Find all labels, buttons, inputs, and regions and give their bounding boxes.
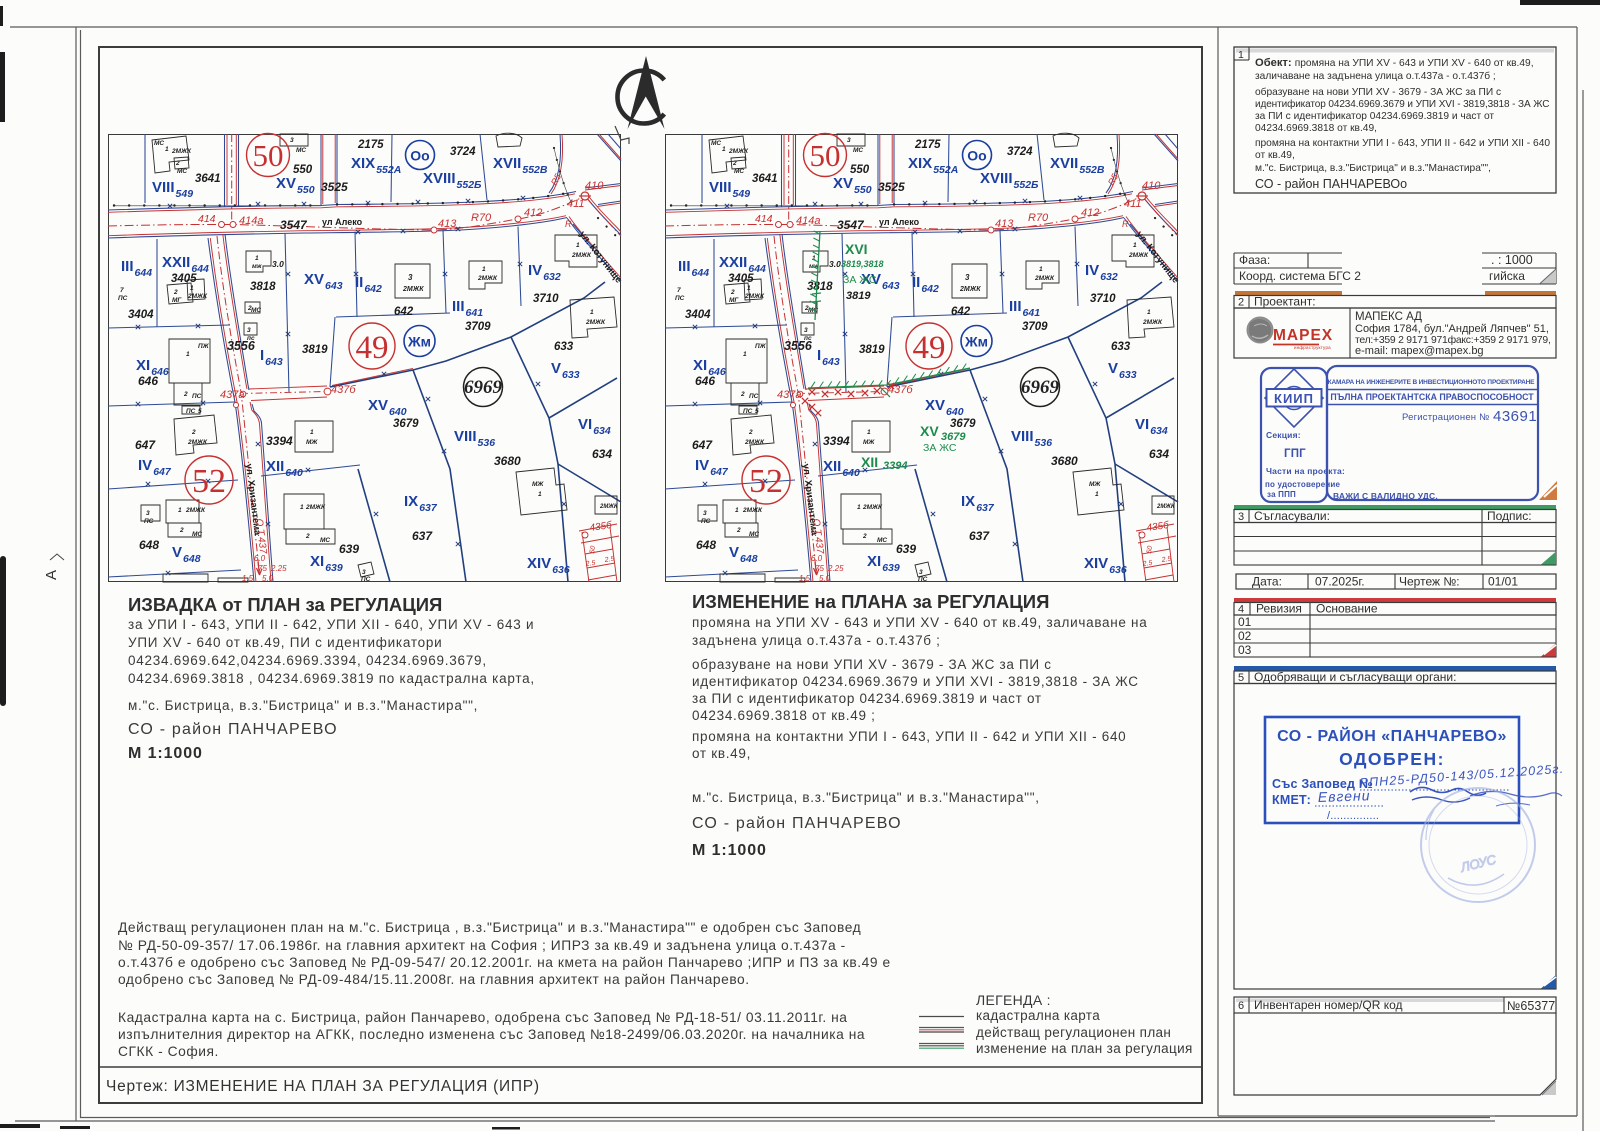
svg-text:5: 5 bbox=[1238, 672, 1244, 684]
svg-text:6: 6 bbox=[1238, 1000, 1244, 1012]
svg-text:№ РД-50-09-357/ 17.06.1986г. н: № РД-50-09-357/ 17.06.1986г. на главния … bbox=[118, 938, 846, 953]
svg-text:действащ регулационен план: действащ регулационен план bbox=[976, 1025, 1171, 1040]
svg-text:КАМАРА НА ИНЖЕНЕРИТЕ В ИНВЕСТИ: КАМАРА НА ИНЖЕНЕРИТЕ В ИНВЕСТИЦИОННОТО П… bbox=[1328, 379, 1536, 386]
svg-text:ЗА ЖС: ЗА ЖС bbox=[923, 442, 957, 454]
svg-text:за ПИ с идентификатор 04234.69: за ПИ с идентификатор 04234.6969.3819 и … bbox=[1255, 110, 1494, 122]
svg-text:промяна на контактни УПИ I - 6: промяна на контактни УПИ I - 643, УПИ II… bbox=[1255, 138, 1550, 149]
svg-text:по удостоверение: по удостоверение bbox=[1265, 480, 1341, 489]
svg-text:Дата:: Дата: bbox=[1252, 575, 1282, 589]
svg-text:задънена улица о.т.437а - о.т.: задънена улица о.т.437а - о.т.437б ; bbox=[692, 633, 941, 648]
svg-text:МАРЕХ: МАРЕХ bbox=[1273, 327, 1333, 344]
svg-text:идентификатор 04234.6969.3679: идентификатор 04234.6969.3679 и УПИ XVI … bbox=[692, 674, 1139, 689]
svg-text:2: 2 bbox=[1238, 297, 1244, 309]
svg-text:Части на проекта:: Части на проекта: bbox=[1266, 466, 1345, 476]
svg-text:03: 03 bbox=[1238, 643, 1252, 657]
svg-text:М 1:1000: М 1:1000 bbox=[692, 842, 767, 859]
svg-text:XII: XII bbox=[861, 454, 878, 470]
svg-text:промяна на УПИ XV - 643 и УПИ: промяна на УПИ XV - 643 и УПИ XV - 640 о… bbox=[692, 615, 1147, 630]
svg-text:3819: 3819 bbox=[846, 290, 871, 302]
svg-text:изпълнителния директор на АГКК: изпълнителния директор на АГКК, последно… bbox=[118, 1027, 865, 1042]
svg-text:промяна на контактни УПИ I - 6: промяна на контактни УПИ I - 643, УПИ II… bbox=[692, 729, 1126, 744]
svg-text:Подпис:: Подпис: bbox=[1487, 509, 1532, 523]
svg-text:гийска: гийска bbox=[1489, 269, 1525, 283]
svg-text:Коорд. система БГС 2: Коорд. система БГС 2 bbox=[1239, 269, 1361, 283]
svg-text:Чертеж №:: Чертеж №: bbox=[1399, 575, 1460, 589]
svg-text:СО - район ПАНЧАРЕВО: СО - район ПАНЧАРЕВО bbox=[128, 721, 338, 738]
svg-text:м."с. Бистрица, в.з."Бистрица": м."с. Бистрица, в.з."Бистрица" и в.з."Ма… bbox=[692, 790, 1040, 805]
svg-text:Основание: Основание bbox=[1316, 602, 1378, 616]
svg-text:м."с. Бистрица, в.з."Бистрица": м."с. Бистрица, в.з."Бистрица" и в.з."Ма… bbox=[128, 698, 478, 713]
svg-text:УПИ XV - 640 от кв.49, ПИ с ид: УПИ XV - 640 от кв.49, ПИ с идентификато… bbox=[128, 635, 442, 650]
svg-text:София 1784, бул."Андрей Ляпчев: София 1784, бул."Андрей Ляпчев" 51, bbox=[1355, 323, 1549, 335]
svg-text:Кадастрална карта на с. Бистри: Кадастрална карта на с. Бистрица, район … bbox=[118, 1010, 848, 1025]
svg-text:Регистрационен №: Регистрационен № bbox=[1402, 412, 1489, 423]
svg-text:. : 1000: . : 1000 bbox=[1491, 253, 1533, 267]
svg-text:/...............: /............... bbox=[1327, 810, 1379, 822]
svg-text:за ПИ с идентификатор 04234.69: за ПИ с идентификатор 04234.6969.3819 и … bbox=[692, 691, 1042, 706]
svg-text:МАПЕКС АД: МАПЕКС АД bbox=[1355, 311, 1422, 323]
svg-text:СГКК - София.: СГКК - София. bbox=[118, 1044, 219, 1059]
svg-text:ВАЖИ С ВАЛИДНО УДС.: ВАЖИ С ВАЛИДНО УДС. bbox=[1333, 491, 1438, 501]
svg-text:Проектант:: Проектант: bbox=[1254, 295, 1316, 309]
svg-text:43691: 43691 bbox=[1493, 408, 1537, 425]
svg-text:Евгени: Евгени bbox=[1318, 787, 1371, 805]
svg-text:1: 1 bbox=[1238, 49, 1244, 61]
svg-text:01/01: 01/01 bbox=[1488, 575, 1518, 589]
svg-text:м."с. Бистрица, в.з."Бистрица": м."с. Бистрица, в.з."Бистрица" и в.з."Ма… bbox=[1255, 163, 1491, 174]
svg-text:образуване на нови УПИ XV - 36: образуване на нови УПИ XV - 3679 - ЗА ЖС… bbox=[692, 657, 1052, 672]
svg-text:инфраструктура: инфраструктура bbox=[1294, 345, 1331, 350]
svg-text:от кв.49,: от кв.49, bbox=[1255, 150, 1295, 161]
svg-text:изменение на план за регулация: изменение на план за регулация bbox=[976, 1041, 1193, 1056]
svg-text:Секция:: Секция: bbox=[1266, 430, 1301, 440]
svg-text:04234.6969.3818 , 04234.6969.3: 04234.6969.3818 , 04234.6969.3819 по кад… bbox=[128, 671, 535, 686]
svg-text:XVI: XVI bbox=[845, 241, 868, 257]
svg-text:ОДОБРЕН:: ОДОБРЕН: bbox=[1339, 749, 1445, 769]
svg-text:ИЗМЕНЕНИЕ на ПЛАНА за РЕГУЛАЦ: ИЗМЕНЕНИЕ на ПЛАНА за РЕГУЛАЦИЯ bbox=[692, 591, 1049, 612]
svg-text:образуване на нови УПИ XV - 36: образуване на нови УПИ XV - 3679 - ЗА ЖС… bbox=[1255, 86, 1501, 98]
svg-text:о.т.437б е одобрено със Запове: о.т.437б е одобрено със Заповед № РД-09-… bbox=[118, 955, 891, 970]
svg-text:от кв.49,: от кв.49, bbox=[692, 746, 751, 761]
svg-text:СО - РАЙОН «ПАНЧАРЕВО»: СО - РАЙОН «ПАНЧАРЕВО» bbox=[1277, 726, 1507, 745]
svg-text:Съгласували:: Съгласували: bbox=[1254, 509, 1330, 523]
svg-text:ЛЕГЕНДА :: ЛЕГЕНДА : bbox=[976, 992, 1051, 1008]
svg-text:КИИП: КИИП bbox=[1274, 391, 1314, 406]
svg-text:4: 4 bbox=[1238, 604, 1244, 616]
svg-text:за ППП: за ППП bbox=[1267, 490, 1296, 499]
svg-text:Обект: промяна на УПИ XV - 643: Обект: промяна на УПИ XV - 643 и УПИ XV … bbox=[1255, 57, 1534, 69]
svg-text:№65377: №65377 bbox=[1507, 999, 1555, 1013]
svg-text:07.2025г.: 07.2025г. bbox=[1315, 575, 1365, 589]
svg-text:04234.6969.642,04234.6969.3394: 04234.6969.642,04234.6969.3394, 04234.69… bbox=[128, 653, 487, 668]
svg-text:одобрено със Заповед № РД-09-4: одобрено със Заповед № РД-09-484/15.11.2… bbox=[118, 972, 750, 987]
svg-text:Действащ регулационен план на: Действащ регулационен план на м."с. Бист… bbox=[118, 920, 861, 935]
svg-text:Инвентарен номер/QR код: Инвентарен номер/QR код bbox=[1254, 998, 1403, 1012]
svg-text:за УПИ I - 643, УПИ II - 642,: за УПИ I - 643, УПИ II - 642, УПИ XII - … bbox=[128, 617, 534, 632]
svg-text:кадастрална карта: кадастрална карта bbox=[976, 1008, 1100, 1023]
svg-text:КМЕТ:: КМЕТ: bbox=[1272, 793, 1311, 807]
svg-text:01: 01 bbox=[1238, 615, 1252, 629]
svg-text:3: 3 bbox=[1238, 511, 1244, 523]
svg-text:заличаване на задънена улица о: заличаване на задънена улица о.т.437а - … bbox=[1255, 70, 1496, 82]
svg-text:3394: 3394 bbox=[883, 460, 907, 472]
svg-text:02: 02 bbox=[1238, 629, 1252, 643]
svg-text:04234.6969.3818 от кв.49 ;: 04234.6969.3818 от кв.49 ; bbox=[692, 708, 876, 723]
svg-text:XV: XV bbox=[920, 423, 939, 439]
svg-text:ПЪЛНА ПРОЕКТАНТСКА ПРАВОСПОСОБ: ПЪЛНА ПРОЕКТАНТСКА ПРАВОСПОСОБНОСТ bbox=[1330, 392, 1534, 402]
svg-text:ИЗВАДКА от ПЛАН за РЕГУЛАЦИЯ: ИЗВАДКА от ПЛАН за РЕГУЛАЦИЯ bbox=[128, 594, 442, 615]
svg-text:идентификатор 04234.6969.3679: идентификатор 04234.6969.3679 и УПИ XVI … bbox=[1255, 98, 1549, 110]
svg-text:СО - район ПАНЧАРЕВО: СО - район ПАНЧАРЕВО bbox=[692, 815, 902, 832]
svg-text:СО - район ПАНЧАРЕВОо: СО - район ПАНЧАРЕВОо bbox=[1255, 177, 1407, 191]
svg-text:Чертеж: ИЗМЕНЕНИЕ НА ПЛАН ЗА Р: Чертеж: ИЗМЕНЕНИЕ НА ПЛАН ЗА РЕГУЛАЦИЯ (… bbox=[106, 1078, 540, 1095]
svg-text:ЗА ЖС: ЗА ЖС bbox=[843, 274, 877, 286]
svg-text:ГПГ: ГПГ bbox=[1284, 448, 1306, 460]
svg-text:Фаза:: Фаза: bbox=[1239, 253, 1270, 267]
svg-text:Ревизия: Ревизия bbox=[1256, 602, 1302, 616]
svg-text:e-mail: mapex@mapex.bg: e-mail: mapex@mapex.bg bbox=[1355, 345, 1484, 357]
svg-text:А: А bbox=[43, 570, 60, 580]
svg-text:3819,3818: 3819,3818 bbox=[841, 259, 884, 269]
svg-text:04234.6969.3818 от кв.49,: 04234.6969.3818 от кв.49, bbox=[1255, 123, 1377, 134]
svg-text:ЛОУС: ЛОУС bbox=[1458, 852, 1498, 876]
svg-text:Одобряващи и съгласуващи орган: Одобряващи и съгласуващи органи: bbox=[1254, 670, 1456, 684]
svg-text:М 1:1000: М 1:1000 bbox=[128, 745, 203, 762]
